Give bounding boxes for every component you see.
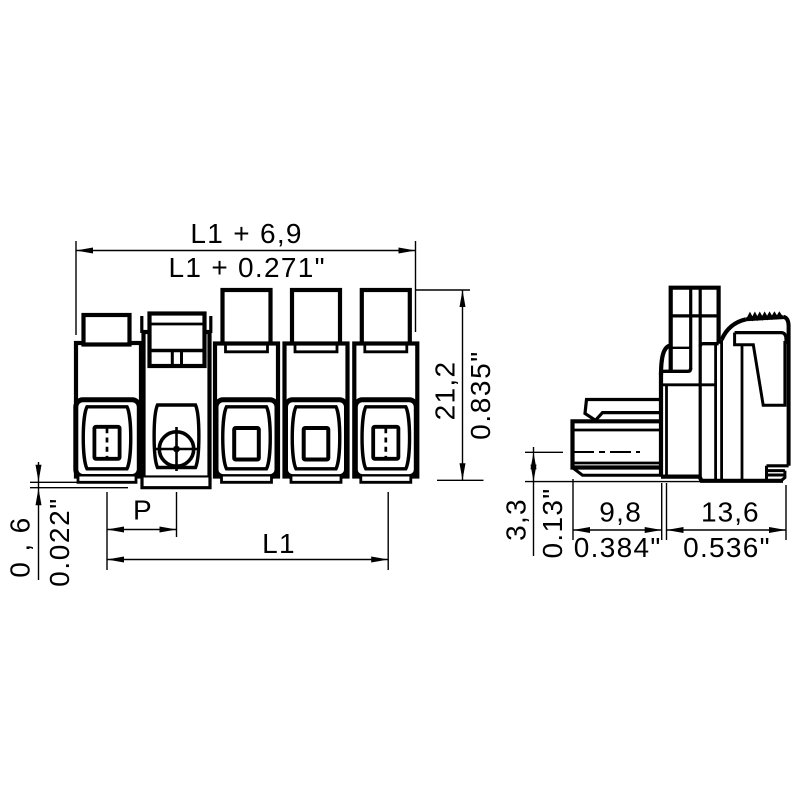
svg-text:9,8: 9,8 (599, 497, 642, 528)
svg-text:21,2: 21,2 (430, 361, 461, 421)
svg-text:P: P (133, 495, 153, 526)
svg-text:L1 + 6,9: L1 + 6,9 (190, 218, 302, 249)
svg-text:0.384": 0.384" (574, 532, 662, 563)
svg-text:13,6: 13,6 (701, 497, 760, 528)
svg-text:3,3: 3,3 (501, 498, 532, 541)
svg-text:0.022": 0.022" (44, 497, 75, 587)
svg-text:0.835": 0.835" (465, 350, 496, 440)
svg-text:0.536": 0.536" (683, 532, 771, 563)
svg-text:L1: L1 (262, 528, 296, 559)
svg-text:L1 + 0.271": L1 + 0.271" (169, 252, 326, 283)
svg-text:0,6: 0,6 (5, 507, 36, 577)
svg-text:0.13": 0.13" (537, 488, 568, 559)
